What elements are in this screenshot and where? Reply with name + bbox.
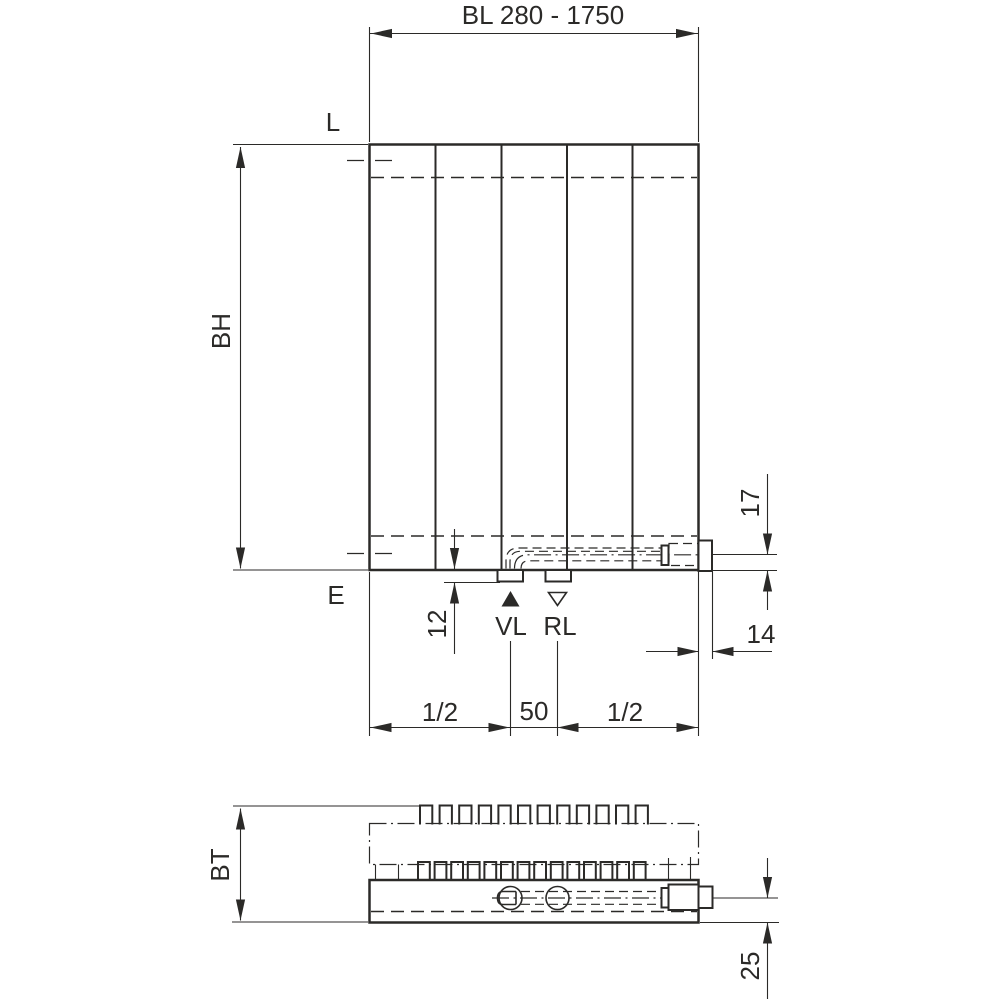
panel-outline — [370, 880, 699, 923]
arrowhead-left-icon — [371, 723, 392, 732]
bt-label: BT — [205, 848, 235, 881]
dim-bh: BH — [206, 145, 368, 571]
arrowhead-down-icon — [236, 548, 245, 569]
return-label: RL — [543, 611, 576, 641]
supply-flow-arrow-icon — [502, 591, 520, 607]
dim-bl: BL 280 - 1750 — [370, 0, 699, 142]
arrowhead-down-icon — [763, 877, 772, 898]
dim25-label: 25 — [735, 952, 765, 981]
front-view: BL 280 - 1750 BH — [206, 0, 777, 736]
dim-14: 14 — [646, 572, 775, 659]
dim17-label: 17 — [735, 489, 765, 518]
arrowhead-down-icon — [763, 534, 772, 555]
arrowhead-right-icon — [676, 29, 697, 38]
arrowhead-left-icon — [558, 723, 579, 732]
radiator-dimension-drawing: BL 280 - 1750 BH — [0, 0, 1000, 1000]
arrowhead-right-icon — [678, 647, 699, 656]
arrowhead-up-icon — [236, 147, 245, 168]
return-stub — [546, 570, 572, 582]
drain-label: E — [327, 580, 344, 610]
fitting-protrusion — [699, 541, 713, 572]
dim12-label: 12 — [422, 610, 452, 639]
radiator-body — [347, 145, 699, 571]
technical-drawing-canvas: BL 280 - 1750 BH — [0, 0, 1000, 1000]
dim-17: 17 — [713, 474, 777, 610]
fitting-body-plan — [669, 885, 699, 911]
bl-range-label: BL 280 - 1750 — [462, 0, 624, 30]
radiator-outline — [370, 145, 699, 571]
fitting-protrusion-plan — [699, 887, 713, 909]
supply-label: VL — [495, 611, 527, 641]
arrowhead-right-icon — [677, 723, 698, 732]
dim14-label: 14 — [747, 619, 776, 649]
convector — [370, 806, 699, 881]
span-left-label: 1/2 — [422, 697, 458, 727]
convector-phantom-outline — [370, 824, 699, 865]
fitting-flange-plan — [662, 888, 669, 908]
arrowhead-up-icon — [450, 583, 459, 604]
arrowhead-up-icon — [763, 923, 772, 944]
span-center-label: 50 — [520, 696, 549, 726]
supply-stub — [498, 570, 524, 582]
panel-section — [370, 880, 713, 923]
fins-top-row — [420, 806, 648, 824]
arrowhead-down-icon — [236, 900, 245, 921]
span-right-label: 1/2 — [607, 697, 643, 727]
arrowhead-up-icon — [236, 809, 245, 830]
dim-25: 25 — [700, 858, 779, 999]
vent-label: L — [326, 107, 340, 137]
arrowhead-left-icon — [713, 647, 734, 656]
arrowhead-left-icon — [371, 29, 392, 38]
return-flow-arrow-icon — [549, 593, 567, 606]
fitting-flange — [662, 546, 669, 566]
dim-bottom-spans: 1/2 50 1/2 — [370, 572, 699, 736]
bottom-view: BT — [205, 806, 779, 1000]
bh-label: BH — [206, 313, 236, 349]
arrowhead-right-icon — [489, 723, 510, 732]
arrowhead-up-icon — [763, 571, 772, 592]
